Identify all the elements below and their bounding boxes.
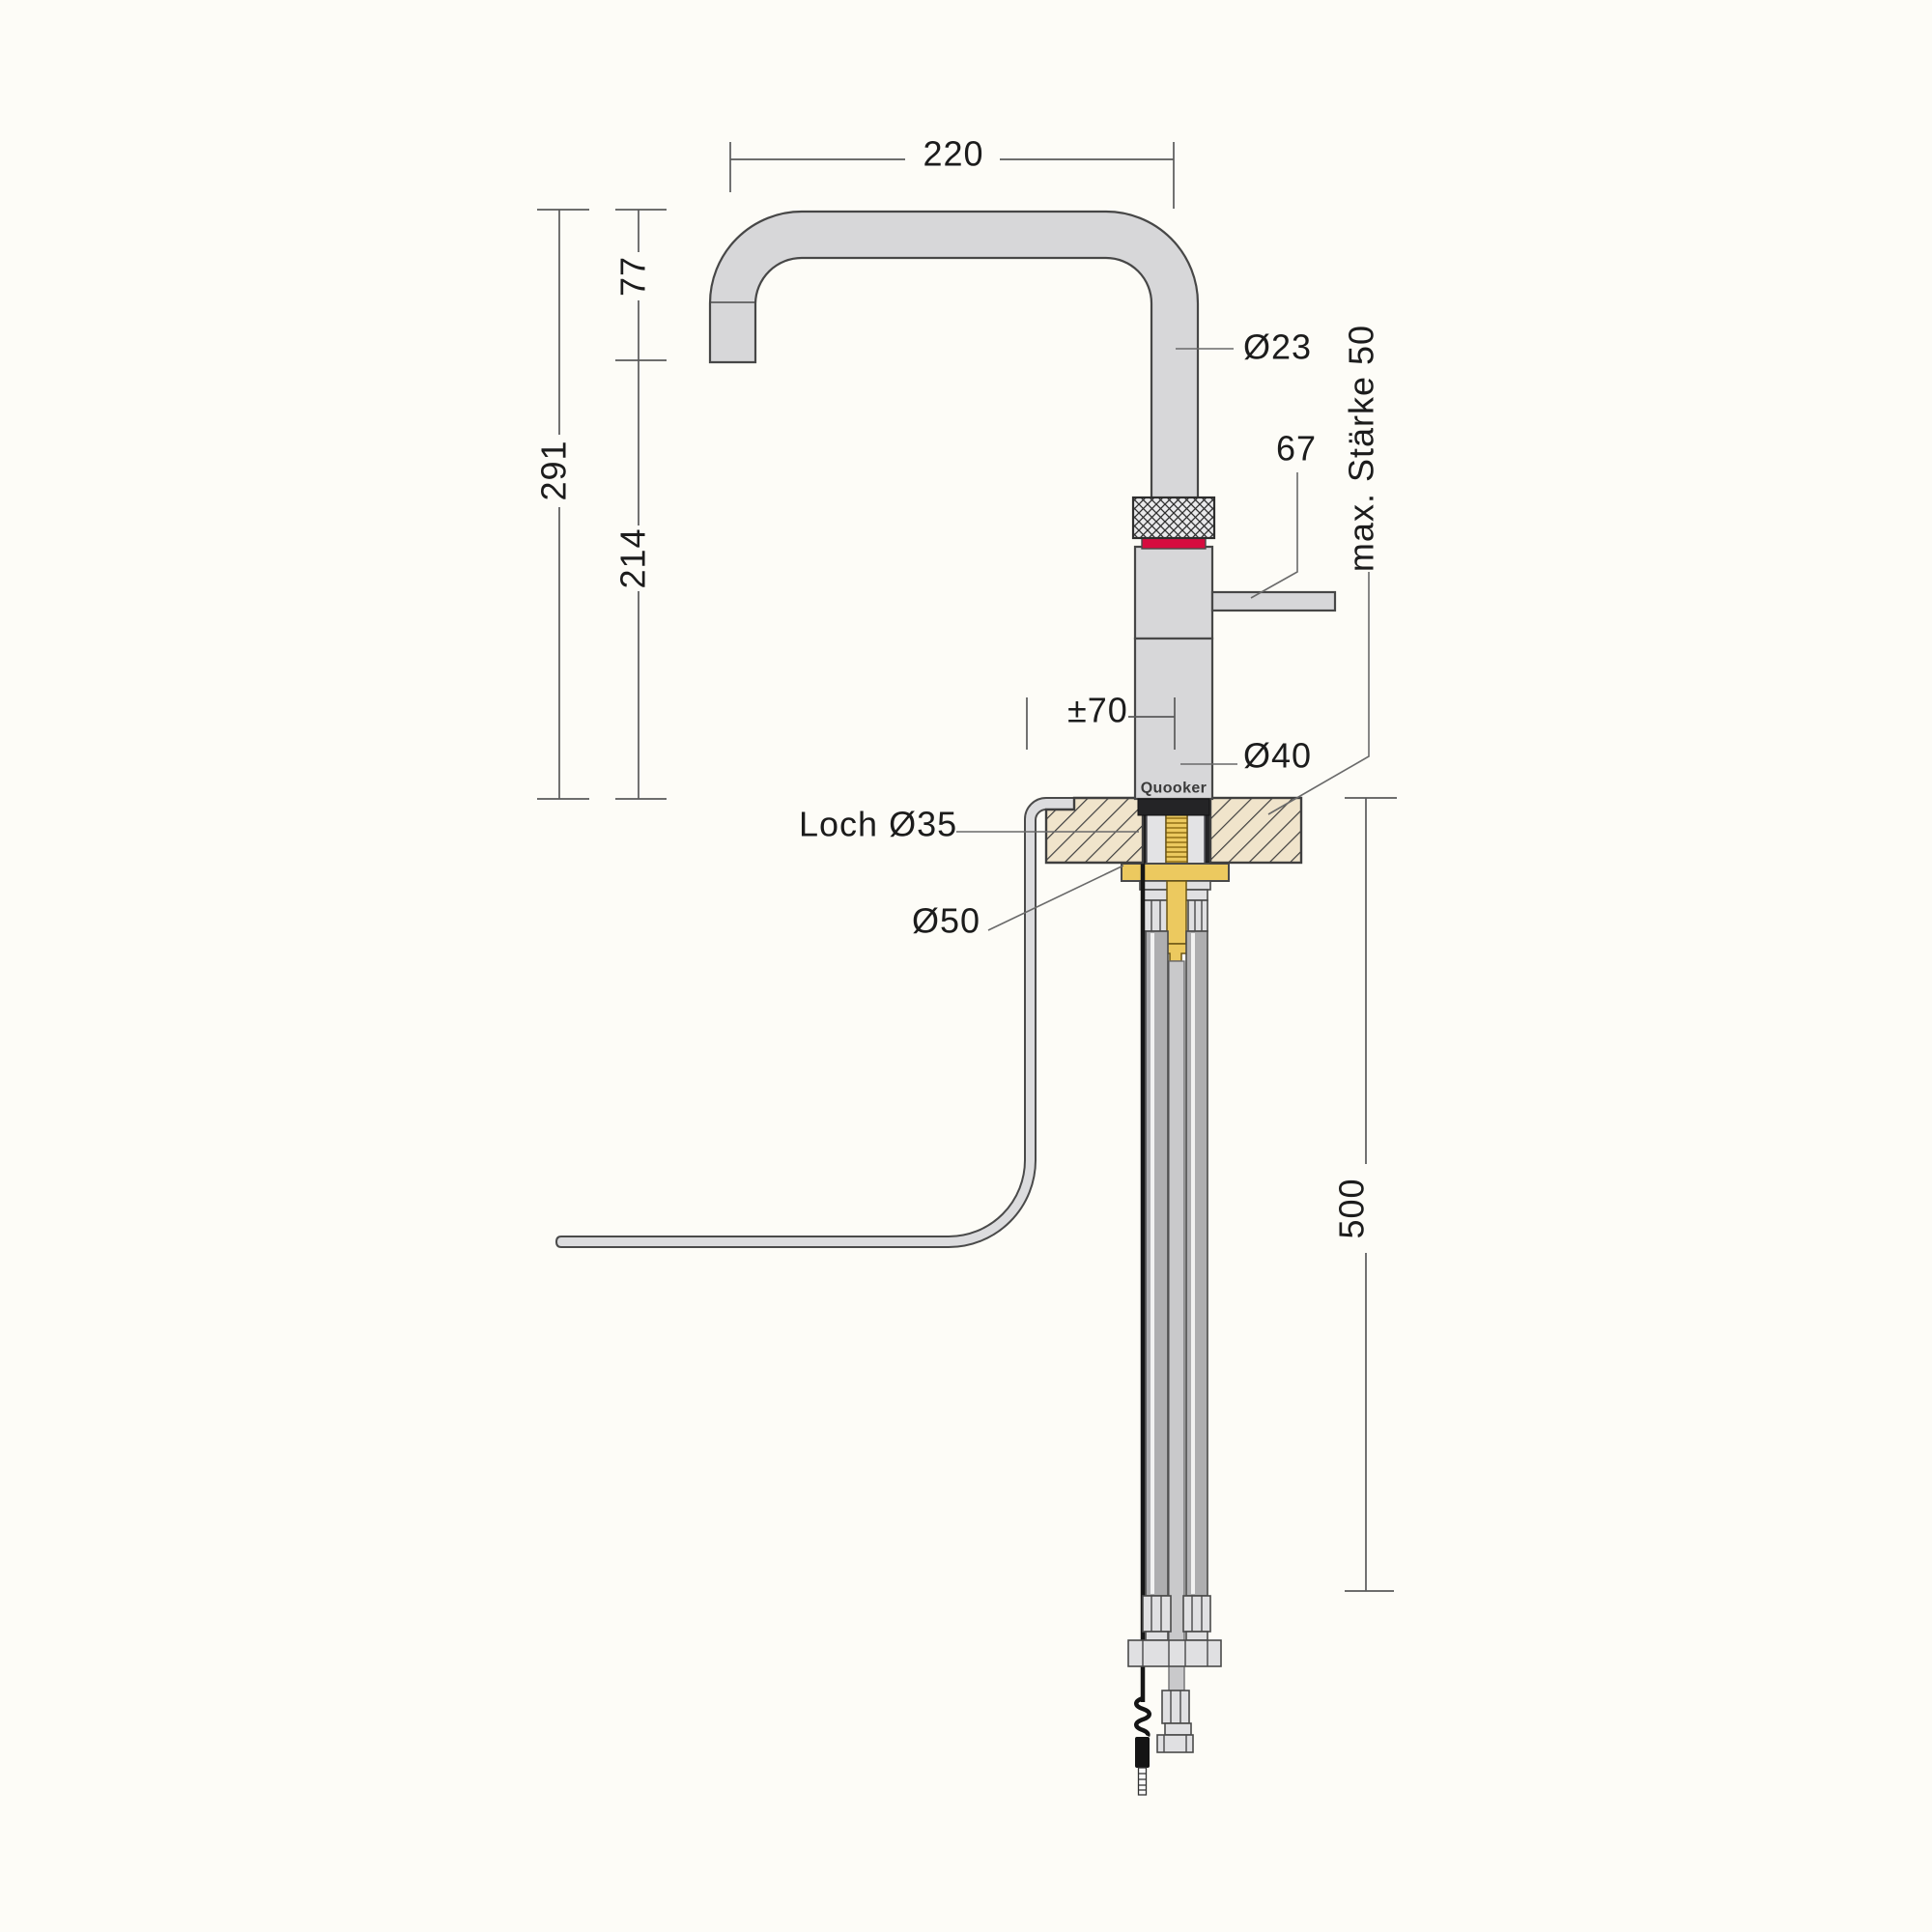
svg-text:Loch Ø35: Loch Ø35	[799, 805, 957, 844]
threaded-rod	[1166, 813, 1187, 867]
tap-body-upper	[1135, 547, 1212, 639]
lower-rod-fitting	[1157, 1690, 1193, 1752]
svg-text:500: 500	[1332, 1178, 1372, 1238]
dim-spout-reach: 220	[730, 134, 1174, 209]
svg-text:77: 77	[613, 256, 653, 297]
dim-spout-drop: 77	[613, 210, 667, 360]
svg-text:Ø23: Ø23	[1243, 327, 1312, 367]
tap-spout	[710, 212, 1198, 500]
tap-handle	[1212, 592, 1335, 611]
dim-under-spout-height: 214	[613, 360, 667, 799]
technical-drawing-page: Quooker 220 291 77 214 Ø23 67 max. Stärk…	[0, 0, 1932, 1932]
svg-text:±70: ±70	[1067, 691, 1128, 730]
hose-left-highlight	[1151, 933, 1154, 1594]
svg-text:Ø40: Ø40	[1243, 736, 1312, 776]
hose-left	[1146, 931, 1168, 1596]
brass-rod	[1167, 881, 1186, 944]
hose-right-highlight	[1191, 933, 1195, 1594]
base-collar	[1138, 799, 1209, 815]
svg-text:220: 220	[923, 134, 983, 174]
cable-jack	[1139, 1768, 1147, 1795]
svg-text:max. Stärke 50: max. Stärke 50	[1342, 325, 1381, 572]
knurled-ring	[1133, 497, 1214, 538]
hose-ferrule-right	[1188, 900, 1207, 931]
hose-end-fitting-right	[1183, 1596, 1210, 1640]
hose-end-fitting-left	[1143, 1596, 1171, 1640]
cable-plug	[1135, 1737, 1150, 1768]
svg-text:214: 214	[613, 527, 653, 588]
svg-text:Ø50: Ø50	[912, 901, 980, 941]
countertop-right-block	[1210, 798, 1301, 863]
hose-ferrule-left	[1144, 900, 1168, 931]
dim-washer-diameter: Ø50	[912, 866, 1123, 941]
center-rod	[1169, 961, 1184, 1690]
svg-text:291: 291	[534, 440, 574, 500]
flexible-hose	[556, 798, 1082, 1247]
brass-washer	[1122, 864, 1229, 881]
shank-tube-right	[1187, 813, 1205, 864]
dim-below-counter-depth: 500	[1332, 798, 1397, 1591]
mounting-bar	[1128, 1640, 1221, 1666]
cable-coil	[1136, 1698, 1150, 1736]
tap-body-lower	[1135, 639, 1212, 799]
svg-text:67: 67	[1276, 429, 1317, 469]
quooker-tap-dimension-diagram: Quooker 220 291 77 214 Ø23 67 max. Stärk…	[0, 0, 1932, 1932]
hose-right	[1186, 931, 1207, 1596]
dim-total-height: 291	[534, 210, 589, 799]
shank-tube-left	[1147, 813, 1166, 864]
dim-handle-length: 67	[1251, 429, 1317, 598]
brand-logo: Quooker	[1141, 781, 1207, 797]
